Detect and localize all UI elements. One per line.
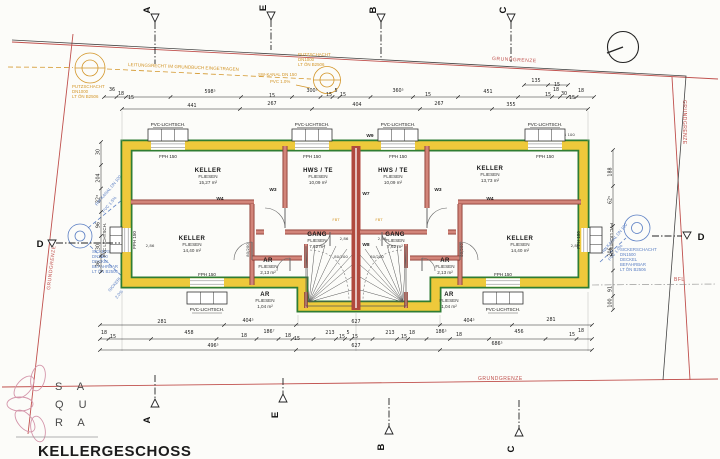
window-opening bbox=[381, 141, 415, 149]
room-area: 2,13 m² bbox=[437, 270, 453, 275]
door-swing bbox=[427, 208, 447, 228]
leitungsrecht-label: LEITUNGSRECHT IM GRUNDBUCH EINGETRAGEN bbox=[128, 62, 239, 72]
dim-label: 18 bbox=[285, 333, 291, 339]
light-shaft bbox=[110, 227, 122, 253]
svg-text:LT ÖN B2506: LT ÖN B2506 bbox=[620, 267, 646, 272]
section-marker-e-bottom: E bbox=[270, 412, 281, 418]
light-shaft-label: PVC-LICHTSCH. bbox=[190, 307, 225, 312]
stair-tread bbox=[309, 290, 352, 302]
dim-label: 355 bbox=[506, 102, 515, 108]
window-opening bbox=[486, 278, 520, 286]
room-finish: FLIESEN bbox=[198, 174, 217, 179]
room-finish: FLIESEN bbox=[307, 238, 326, 243]
page-title: KELLERGESCHOSS bbox=[38, 443, 191, 459]
section-marker-c-bottom: C bbox=[506, 445, 517, 452]
grundgrenze-label-top: GRUNDGRENZE bbox=[492, 56, 537, 64]
room-finish: FLIESEN bbox=[435, 264, 454, 269]
door-size-tag: 80/200 bbox=[334, 254, 348, 259]
window-opening bbox=[190, 278, 224, 286]
stair-tread bbox=[360, 277, 403, 302]
window-opening bbox=[151, 141, 185, 149]
dim-label: 281 bbox=[546, 317, 555, 323]
sw-kanal-grade-label: PVC 1.0% bbox=[270, 79, 290, 84]
fph-label: FPH 150 bbox=[198, 272, 216, 277]
door-size-tag: 80/200 bbox=[245, 243, 250, 257]
dim-label: 15 bbox=[352, 334, 358, 340]
light-shaft-label: PVC-LICHTSCH. bbox=[486, 307, 521, 312]
wall-tag-w9: W9 bbox=[366, 133, 374, 139]
stair-tread bbox=[309, 245, 315, 302]
dim-label: 5 bbox=[346, 330, 349, 336]
light-shaft-label: PVC-LICHTSCH. bbox=[295, 122, 330, 127]
stair-tread bbox=[309, 265, 352, 302]
bfl-label: BFL bbox=[674, 277, 685, 283]
dim-label: 686⁵ bbox=[491, 341, 502, 347]
svg-text:LT ÖN B2506: LT ÖN B2506 bbox=[92, 269, 118, 274]
room-area: 10,09 m² bbox=[384, 180, 403, 185]
door-size-tag: 80/200 bbox=[459, 243, 464, 257]
putzschacht-label-left: PUTZSCHACHT DN1000 LT ÖN B2506 bbox=[72, 84, 105, 99]
dim-label: 100 bbox=[608, 298, 614, 307]
dim-label: 267 bbox=[267, 101, 276, 107]
floor-plan-drawing: GRUNDGRENZE GRUNDGRENZE GRUNDGRENZE GRUN… bbox=[0, 0, 720, 459]
light-shaft-label: PVC LICHTSCH. bbox=[609, 223, 614, 257]
dim-label: 18 bbox=[456, 332, 462, 338]
dim-label: 404⁵ bbox=[463, 318, 474, 324]
fph-label: FPH 150 bbox=[536, 154, 554, 159]
fph-label: FPH 150 bbox=[132, 231, 137, 249]
dim-label: 15 bbox=[128, 95, 134, 101]
dim-label: 15 bbox=[326, 92, 332, 98]
dim-label: 204 bbox=[96, 173, 102, 182]
logo-letters-row1: S A bbox=[55, 381, 90, 393]
dim-label: 598⁵ bbox=[204, 89, 215, 95]
fph-label: FPH 150 bbox=[303, 154, 321, 159]
dim-label: 213 bbox=[325, 330, 334, 336]
dim-label: 15 bbox=[554, 82, 560, 88]
section-markers-bottom bbox=[151, 375, 523, 436]
section-markers-top bbox=[151, 12, 515, 64]
dim-label: 62⁵ bbox=[608, 196, 614, 204]
svg-text:LT ÖN B2506: LT ÖN B2506 bbox=[298, 62, 325, 67]
dim-label: 267 bbox=[434, 101, 443, 107]
light-shaft-label: PVC-LICHTSCH. bbox=[528, 122, 563, 127]
dim-label: 458 bbox=[184, 330, 193, 336]
dim-label: 15 bbox=[339, 334, 345, 340]
dim-label: 404⁵ bbox=[242, 318, 253, 324]
dim-label: 15 bbox=[425, 92, 431, 98]
grundgrenze-label-left: GRUNDGRENZE bbox=[46, 245, 57, 290]
room-finish: FLIESEN bbox=[510, 242, 529, 247]
bfl-line bbox=[592, 284, 716, 285]
grundgrenze-label-right: GRUNDGRENZE bbox=[681, 100, 687, 145]
north-arrow-icon bbox=[607, 32, 639, 63]
dim-label: 186⁵ bbox=[435, 329, 446, 335]
window-opening bbox=[581, 228, 589, 252]
dim-label: 188 bbox=[608, 167, 614, 176]
grundgrenze-label-bottom: GRUNDGRENZE bbox=[478, 376, 523, 382]
height-annotation: 2,86 bbox=[571, 243, 580, 248]
light-shaft bbox=[148, 129, 188, 141]
dim-label: 18 bbox=[118, 91, 124, 97]
light-shaft-label: PVC-LICHTSCH. bbox=[151, 122, 186, 127]
dim-label: 15 bbox=[110, 334, 116, 340]
floor-plan-sheet: GRUNDGRENZE GRUNDGRENZE GRUNDGRENZE GRUN… bbox=[0, 0, 720, 459]
section-marker-b-bottom: B bbox=[376, 443, 387, 450]
wall-tag-w4-left: W4 bbox=[216, 196, 224, 202]
dim-label: 18 bbox=[578, 88, 584, 94]
dim-label: 456 bbox=[514, 329, 523, 335]
height-annotation: 2,86 bbox=[378, 236, 387, 241]
dim-label: 15 bbox=[569, 332, 575, 338]
room-finish: FLIESEN bbox=[255, 298, 274, 303]
dim-label: 15 bbox=[269, 93, 275, 99]
dim-label: 213 bbox=[385, 330, 394, 336]
wall-tag-w3-right: W3 bbox=[434, 187, 442, 193]
wall-tag-w3-left: W3 bbox=[269, 187, 277, 193]
room-area: 1,04 m² bbox=[257, 304, 273, 309]
stair-tread bbox=[397, 245, 403, 302]
light-shaft bbox=[292, 129, 332, 141]
room-area: 13,73 m² bbox=[481, 178, 500, 183]
window-opening bbox=[295, 141, 329, 149]
dim-label: 15 bbox=[294, 336, 300, 342]
light-shaft-label: PVC-LICHTSCH. bbox=[381, 122, 416, 127]
dim-label: 30 bbox=[561, 91, 567, 97]
dim-label: 404 bbox=[352, 102, 361, 108]
fph-label: FPH 150 bbox=[389, 154, 407, 159]
light-shaft-label: PVC LICHTSCH. bbox=[102, 223, 107, 257]
dim-label: 186⁷ bbox=[263, 329, 274, 335]
putzschacht-label-mid: PUTZSCHACHT DN1000 LT ÖN B2506 bbox=[298, 52, 331, 67]
party-wall bbox=[352, 146, 361, 310]
dim-label: 91 bbox=[608, 286, 614, 292]
light-shaft bbox=[483, 292, 523, 304]
dim-label: 30 bbox=[96, 244, 102, 250]
dim-label: 18 bbox=[578, 328, 584, 334]
wall-tag-w8: W8 bbox=[362, 242, 370, 248]
section-marker-e-top: E bbox=[258, 5, 269, 11]
room-area: 1,04 m² bbox=[441, 304, 457, 309]
dim-label: 18 bbox=[409, 330, 415, 336]
dim-label: 451 bbox=[483, 89, 492, 95]
room-finish: FLIESEN bbox=[385, 238, 404, 243]
wall-tag-w4-right: W4 bbox=[486, 196, 494, 202]
window-opening bbox=[122, 228, 130, 252]
fbt-tag: FBT bbox=[375, 217, 383, 222]
dim-label: 135 bbox=[531, 78, 540, 84]
dim-label: 15 bbox=[340, 92, 346, 98]
stair-tread bbox=[309, 277, 352, 302]
room-area: 15,27 m² bbox=[199, 180, 218, 185]
room-area: 2,13 m² bbox=[260, 270, 276, 275]
room-area: 10,09 m² bbox=[309, 180, 328, 185]
dim-label: 15 bbox=[401, 334, 407, 340]
room-finish: FLIESEN bbox=[258, 264, 277, 269]
dim-label: 36 bbox=[96, 261, 102, 267]
room-finish: FLIESEN bbox=[439, 298, 458, 303]
dim-label: 5 bbox=[334, 88, 337, 94]
section-marker-d-right: D bbox=[698, 232, 705, 243]
dim-label: 96 bbox=[96, 222, 102, 228]
fbt-tag: FBT bbox=[332, 217, 340, 222]
sw-kanal-label: SW-KANAL DN 150 bbox=[258, 72, 297, 77]
light-shaft bbox=[525, 129, 565, 141]
wall-tag-w7: W7 bbox=[362, 191, 370, 197]
section-marker-c-top: C bbox=[498, 6, 509, 13]
room-finish: FLIESEN bbox=[480, 172, 499, 177]
section-marker-b-top: B bbox=[368, 6, 379, 13]
logo-letters-row3: R A bbox=[55, 417, 91, 429]
light-shaft bbox=[378, 129, 418, 141]
light-shaft bbox=[590, 227, 602, 253]
light-shaft bbox=[187, 292, 227, 304]
dim-label: 496⁵ bbox=[207, 343, 218, 349]
section-marker-d-left: D bbox=[37, 239, 44, 250]
dim-label: 627 bbox=[351, 319, 360, 325]
dim-label: 18 bbox=[101, 330, 107, 336]
dim-label: 22³ bbox=[96, 195, 102, 203]
dim-label: 18 bbox=[241, 333, 247, 339]
dim-label: 360⁵ bbox=[392, 88, 403, 94]
dim-label: 441 bbox=[187, 103, 196, 109]
dim-label: 281 bbox=[157, 319, 166, 325]
room-area: 7,62 m² bbox=[387, 244, 403, 249]
room-finish: FLIESEN bbox=[383, 174, 402, 179]
stair-tread bbox=[360, 265, 403, 302]
svg-text:LT ÖN B2506: LT ÖN B2506 bbox=[72, 94, 99, 99]
room-finish: FLIESEN bbox=[182, 242, 201, 247]
height-annotation: 2,86 bbox=[340, 236, 349, 241]
sickerl-grade: 2.0% bbox=[114, 289, 124, 300]
room-area: 14,40 m² bbox=[511, 248, 530, 253]
height-annotation: 2,86 bbox=[146, 243, 155, 248]
saqura-logo bbox=[7, 364, 48, 443]
sickerschacht-label-right: SICKERSCHACHT DN1500 DECKEL BEFAHRBAR LT… bbox=[620, 247, 657, 272]
dim-label: 36 bbox=[109, 87, 115, 93]
section-marker-a-top: A bbox=[142, 6, 153, 13]
fph-label: FPH 150 bbox=[159, 154, 177, 159]
dim-label: 627 bbox=[351, 343, 360, 349]
room-area: 7,62 m² bbox=[309, 244, 325, 249]
stair-tread bbox=[360, 290, 403, 302]
section-marker-a-bottom: A bbox=[142, 416, 153, 423]
door-size-tag: 80/200 bbox=[370, 254, 384, 259]
window-opening bbox=[528, 141, 562, 149]
dim-label: 300⁵ bbox=[306, 88, 317, 94]
door-swing bbox=[265, 208, 285, 228]
room-area: 14,40 m² bbox=[183, 248, 202, 253]
fph-label: FPH 150 bbox=[494, 272, 512, 277]
dim-label: 30 bbox=[96, 149, 102, 155]
dim-label: 15 bbox=[545, 92, 551, 98]
logo-letters-row2: Q U bbox=[55, 399, 93, 411]
room-finish: FLIESEN bbox=[308, 174, 327, 179]
dim-label: 15 bbox=[569, 95, 575, 101]
